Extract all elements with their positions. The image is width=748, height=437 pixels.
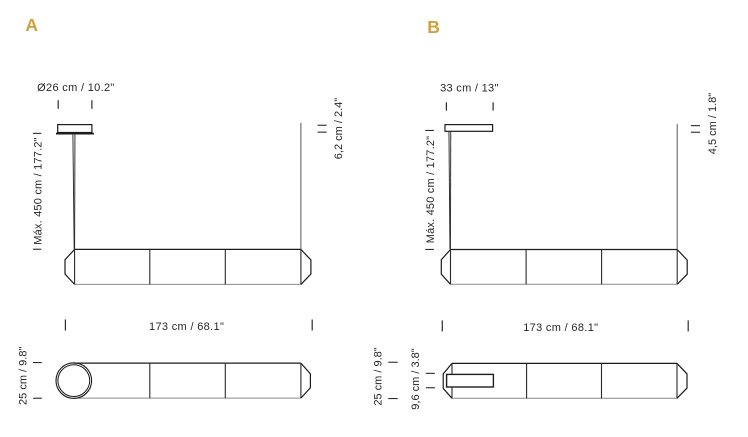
svg-text:173 cm / 68.1": 173 cm / 68.1"	[523, 322, 598, 334]
svg-text:25 cm / 9.8": 25 cm / 9.8"	[372, 347, 384, 405]
svg-text:Ø26 cm / 10.2": Ø26 cm / 10.2"	[37, 82, 114, 94]
svg-text:4,5 cm / 1.8": 4,5 cm / 1.8"	[707, 93, 719, 154]
svg-text:B: B	[427, 17, 440, 37]
svg-text:Máx. 450 cm / 177.2": Máx. 450 cm / 177.2"	[425, 136, 437, 244]
svg-text:173 cm / 68.1": 173 cm / 68.1"	[149, 321, 224, 333]
svg-text:25 cm / 9.8": 25 cm / 9.8"	[18, 347, 30, 405]
svg-text:Máx. 450 cm / 177.2": Máx. 450 cm / 177.2"	[32, 137, 44, 245]
svg-text:33 cm / 13": 33 cm / 13"	[440, 82, 499, 94]
svg-text:6,2 cm / 2.4": 6,2 cm / 2.4"	[333, 98, 345, 159]
svg-text:A: A	[25, 15, 38, 35]
svg-text:9,6 cm / 3.8": 9,6 cm / 3.8"	[410, 348, 422, 409]
